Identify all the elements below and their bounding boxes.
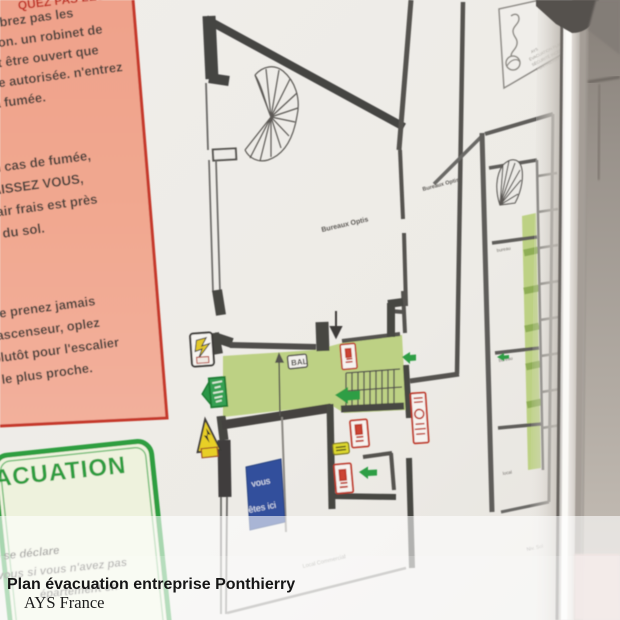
svg-text:BAL: BAL [291,357,308,368]
svg-text:Plan évacuation entreprise Pon: Plan évacuation entreprise Ponthierry [7,576,295,593]
svg-text:AYS France: AYS France [24,593,105,612]
